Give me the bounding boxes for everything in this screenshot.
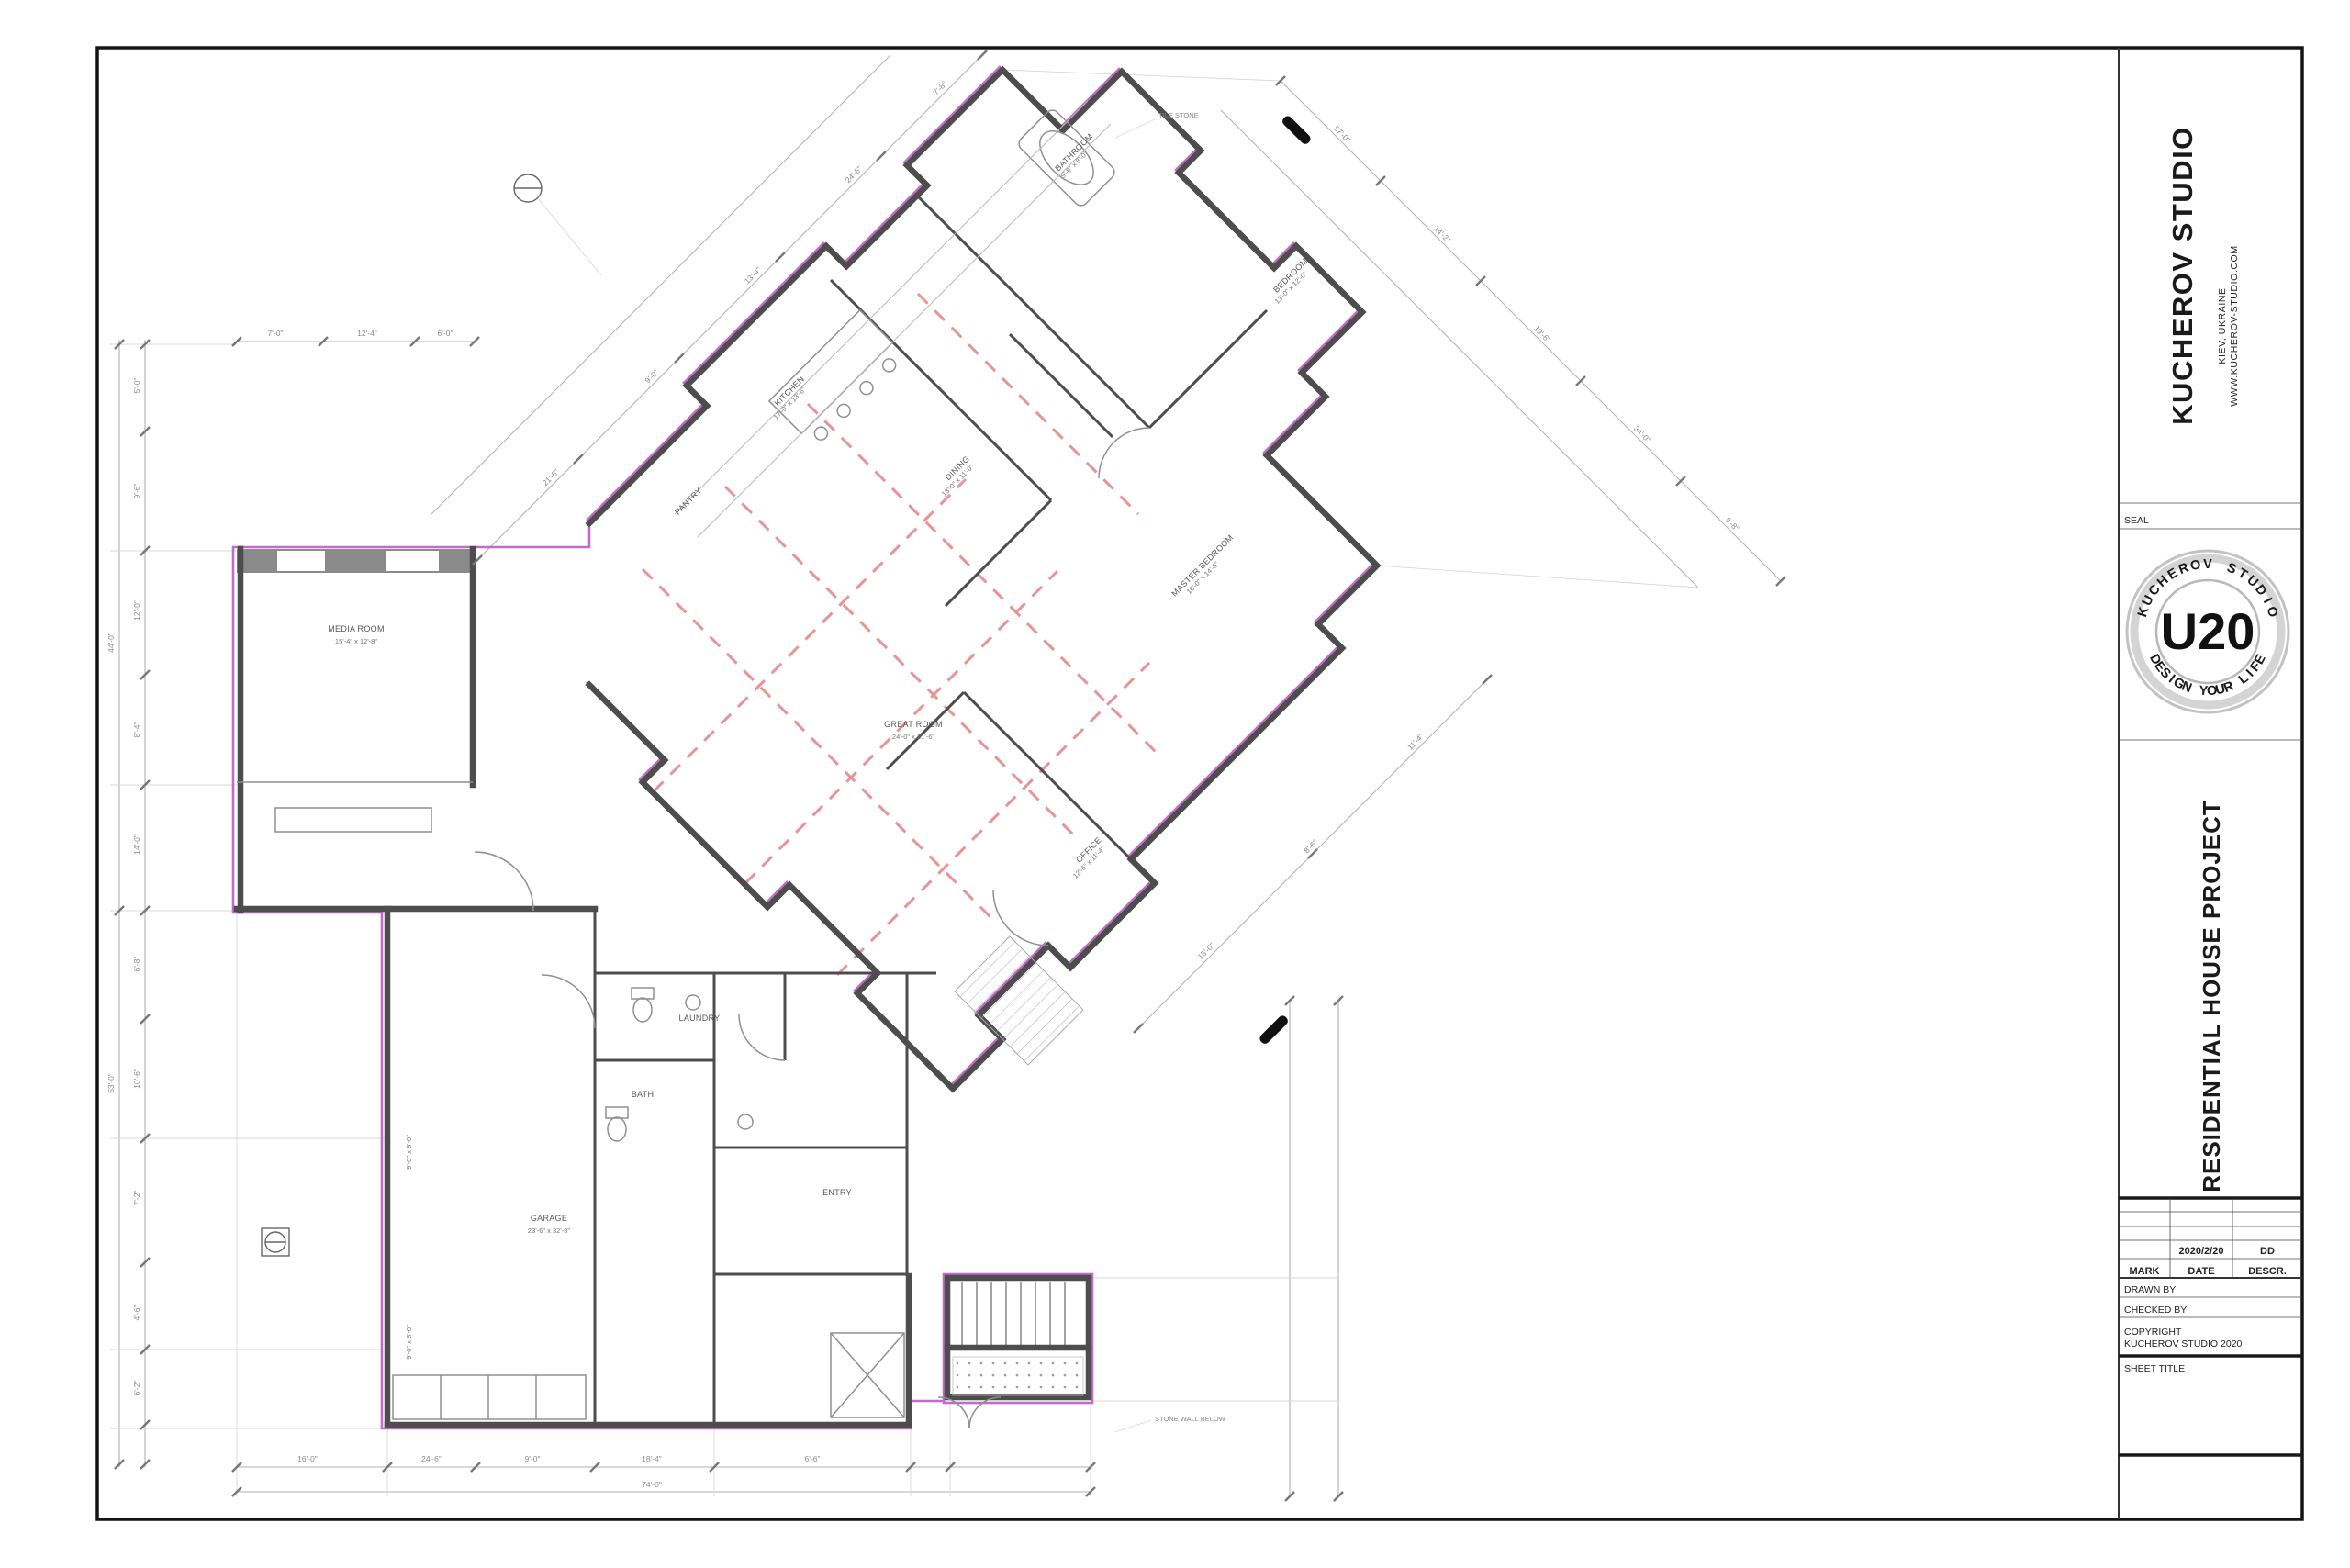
dim-tick	[574, 454, 583, 464]
dimension-label: 19'-6"	[1532, 324, 1552, 344]
dimension-label: 34'-0"	[1632, 424, 1652, 444]
dimension-label: 74'-0"	[642, 1480, 662, 1489]
dim-tick	[978, 50, 987, 60]
room-label: MEDIA ROOM	[328, 624, 385, 633]
dimension-label: 7'-0"	[268, 329, 284, 338]
seal-center-text: U20	[2161, 602, 2255, 660]
dimension-label: 16'-0"	[297, 1454, 318, 1463]
revision-header-date: DATE	[2188, 1266, 2214, 1277]
garage-door-label: 9'-0" x 8'-0"	[405, 1135, 413, 1170]
title-block: KUCHEROV STUDIO KIEV, UKRAINE WWW.KUCHER…	[2119, 48, 2302, 1519]
dimension-label: 6'-2"	[132, 1381, 141, 1396]
toilet	[606, 1107, 628, 1141]
room-label: MASTER BEDROOM	[1169, 532, 1235, 598]
room-size-label: 15'-4" x 12'-8"	[335, 637, 377, 645]
toilet	[632, 988, 654, 1022]
revision-header-mark: MARK	[2130, 1266, 2160, 1277]
room-label: BATH	[632, 1090, 655, 1099]
dimension-label: 14'-2"	[1432, 224, 1452, 244]
copyright-line2: KUCHEROV STUDIO 2020	[2124, 1338, 2243, 1350]
dimension-label: 9'-6"	[132, 484, 141, 499]
dimension-label: 24'-6"	[844, 164, 864, 185]
room-label: PANTRY	[673, 486, 704, 517]
dimension-label: 15'-0"	[1196, 941, 1216, 961]
section-marker	[1281, 114, 1313, 146]
drawn-by-label: DRAWN BY	[2124, 1284, 2176, 1295]
section-marker	[1258, 1014, 1290, 1046]
dimension-label: 7'-8"	[931, 79, 948, 96]
copyright-line1: COPYRIGHT	[2124, 1327, 2182, 1338]
dimension-label: 9'-0"	[643, 367, 660, 385]
dimension-label: 9'-8"	[1724, 515, 1741, 532]
sheet-title-label: SHEET TITLE	[2124, 1363, 2185, 1374]
studio-name: KUCHEROV STUDIO	[2166, 126, 2199, 425]
studio-location: KIEV, UKRAINE	[2217, 287, 2228, 364]
revision-date: 2020/2/20	[2179, 1246, 2224, 1257]
dimension-label: 44'-0"	[106, 633, 116, 653]
revision-header-descr: DESCR.	[2248, 1266, 2287, 1277]
revision-descr: DD	[2260, 1246, 2275, 1257]
shower	[831, 1333, 904, 1417]
dimension-label: 11'-4"	[1405, 732, 1426, 752]
dim-tick	[776, 252, 785, 262]
room-label: ENTRY	[822, 1188, 852, 1197]
plan-labels: MEDIA ROOM15'-4" x 12'-8"GARAGE23'-6" x …	[106, 79, 1741, 1489]
dimension-label: 13'-4"	[743, 265, 763, 286]
dimension-label: 6'-0"	[438, 329, 453, 338]
dimension-label: 8'-4"	[132, 722, 141, 738]
drawing-sheet: MEDIA ROOM15'-4" x 12'-8"GARAGE23'-6" x …	[0, 0, 2350, 1568]
dimension-label: 10'-6"	[132, 1069, 141, 1089]
annotation: STONE WALL BELOW	[1155, 1415, 1226, 1423]
interior-walls	[237, 195, 1267, 1425]
dimension-label: 53'-0"	[106, 1073, 116, 1093]
seal-label: SEAL	[2124, 515, 2149, 526]
studio-website: WWW.KUCHEROV-STUDIO.COM	[2229, 245, 2240, 406]
room-label: GARAGE	[531, 1214, 567, 1223]
dimension-label: 4'-6"	[132, 1305, 141, 1321]
dimension-label: 8'-6"	[1302, 837, 1319, 855]
dimension-label: 14'-0"	[132, 834, 141, 855]
fixtures	[393, 101, 1117, 1419]
dim-tick	[1483, 675, 1492, 684]
dimension-label: 12'-0"	[132, 600, 141, 621]
room-size-label: 24'-0" x 21'-6"	[892, 733, 934, 741]
room-label: GREAT ROOM	[884, 720, 943, 729]
dimension-label: 5'-0"	[132, 378, 141, 394]
studio-seal: U20 KUCHEROV STUDIO DESIGN YOUR LIFE	[2127, 551, 2288, 712]
dimension-label: 7'-2"	[132, 1191, 141, 1206]
dimension-label: 12'-4"	[357, 329, 377, 338]
garage-door-label: 9'-0" x 8'-0"	[405, 1325, 413, 1360]
sink	[738, 1114, 753, 1129]
dimension-label: 6'-6"	[805, 1454, 821, 1463]
checked-by-label: CHECKED BY	[2124, 1305, 2187, 1316]
porch-stair	[947, 936, 1089, 1397]
room-size-label: 23'-6" x 32'-8"	[528, 1226, 570, 1235]
dimension-label: 57'-0"	[1332, 124, 1352, 144]
dimension-label: 24'-6"	[421, 1454, 442, 1463]
garage-cabinets	[393, 1375, 586, 1419]
deck-diag-hatch	[955, 936, 1083, 1065]
project-title: RESIDENTIAL HOUSE PROJECT	[2198, 800, 2225, 1193]
kitchen-island	[769, 310, 907, 448]
dimension-label: 21'-6"	[541, 467, 561, 487]
dimension-label: 9'-0"	[525, 1454, 541, 1463]
dimension-label: 6'-8"	[132, 957, 141, 972]
dimension-label: 18'-4"	[642, 1454, 662, 1463]
exterior-walls	[237, 70, 1377, 1425]
media-room-top-wall	[237, 549, 475, 573]
dim-tick	[675, 353, 684, 363]
kitchen-counter	[675, 101, 1088, 514]
annotation: TILE STONE	[1158, 111, 1199, 119]
dim-tick	[1134, 1024, 1143, 1033]
dim-tick	[877, 151, 886, 161]
sink	[686, 995, 700, 1010]
deck-dot-hatch	[953, 1357, 1083, 1395]
callouts	[262, 114, 1313, 1432]
room-label: LAUNDRY	[679, 1014, 721, 1023]
seal-arc-letter: V	[2203, 557, 2212, 572]
